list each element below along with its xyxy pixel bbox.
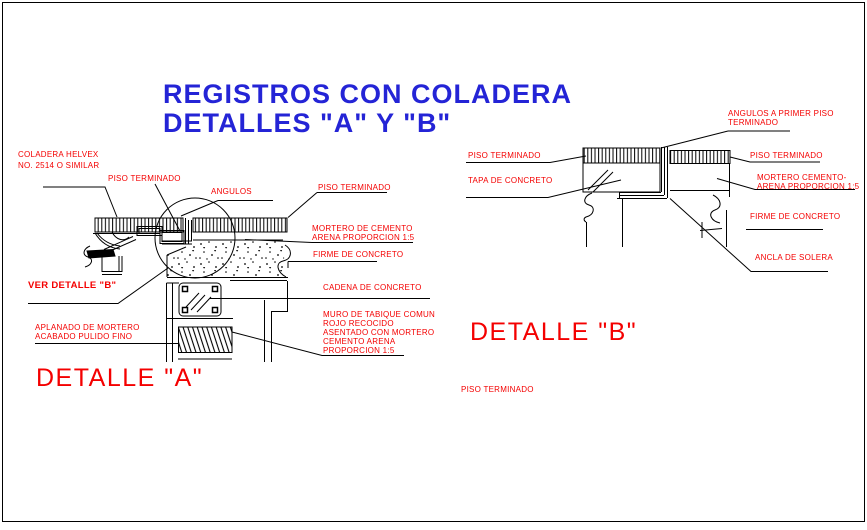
label-muro-line1: MURO DE TABIQUE COMUN: [323, 310, 435, 319]
label-piso-terminado-a-left: PISO TERMINADO: [108, 174, 181, 183]
label-aplanado-line2: ACABADO PULIDO FINO: [35, 332, 140, 341]
label-mortero-b-line1: MORTERO CEMENTO-: [757, 173, 859, 182]
label-muro-line2: ROJO RECOCIDO: [323, 319, 435, 328]
label-angulos: ANGULOS: [211, 187, 252, 196]
label-ver-detalle-b: VER DETALLE "B": [28, 281, 116, 290]
label-piso-terminado-b-right: PISO TERMINADO: [750, 151, 823, 160]
detail-a-title: DETALLE "A": [36, 364, 203, 393]
label-angulos-primer-line2: TERMINADO: [728, 118, 834, 127]
sheet-title-line1: REGISTROS CON COLADERA: [163, 80, 572, 109]
label-firme-concreto-b: FIRME DE CONCRETO: [750, 212, 840, 221]
drawing-canvas: REGISTROS CON COLADERA DETALLES "A" Y "B…: [0, 0, 867, 530]
label-muro-tabique: MURO DE TABIQUE COMUN ROJO RECOCIDO ASEN…: [323, 310, 435, 355]
label-piso-terminado-a-right: PISO TERMINADO: [318, 183, 391, 192]
label-ancla-solera: ANCLA DE SOLERA: [755, 253, 833, 262]
label-piso-terminado-note: PISO TERMINADO: [461, 385, 534, 394]
label-piso-terminado-b-left: PISO TERMINADO: [468, 151, 541, 160]
sheet-title: REGISTROS CON COLADERA DETALLES "A" Y "B…: [163, 80, 572, 138]
label-angulos-primer-line1: ANGULOS A PRIMER PISO: [728, 109, 834, 118]
detail-b-title: DETALLE "B": [470, 318, 637, 347]
sheet-title-line2: DETALLES "A" Y "B": [163, 109, 572, 138]
label-mortero-a-line2: ARENA PROPORCION 1:5: [312, 233, 414, 242]
label-muro-line3: ASENTADO CON MORTERO: [323, 328, 435, 337]
label-angulos-primer-piso: ANGULOS A PRIMER PISO TERMINADO: [728, 109, 834, 127]
label-mortero-b-line2: ARENA PROPORCION 1:5: [757, 182, 859, 191]
label-mortero-cemento-a: MORTERO DE CEMENTO ARENA PROPORCION 1:5: [312, 224, 414, 242]
label-tapa-concreto: TAPA DE CONCRETO: [468, 176, 552, 185]
label-muro-line4: CEMENTO ARENA: [323, 337, 435, 346]
label-coladera-helvex-line2: NO. 2514 O SIMILAR: [18, 160, 99, 171]
label-firme-concreto-a: FIRME DE CONCRETO: [313, 250, 403, 259]
label-aplanado-mortero: APLANADO DE MORTERO ACABADO PULIDO FINO: [35, 323, 140, 341]
label-mortero-a-line1: MORTERO DE CEMENTO: [312, 224, 414, 233]
label-coladera-helvex-line1: COLADERA HELVEX: [18, 149, 99, 160]
label-coladera-helvex: COLADERA HELVEX NO. 2514 O SIMILAR: [18, 149, 99, 171]
label-mortero-cemento-b: MORTERO CEMENTO- ARENA PROPORCION 1:5: [757, 173, 859, 191]
label-cadena-concreto: CADENA DE CONCRETO: [323, 283, 422, 292]
label-muro-line5: PROPORCION 1:5: [323, 346, 435, 355]
label-aplanado-line1: APLANADO DE MORTERO: [35, 323, 140, 332]
